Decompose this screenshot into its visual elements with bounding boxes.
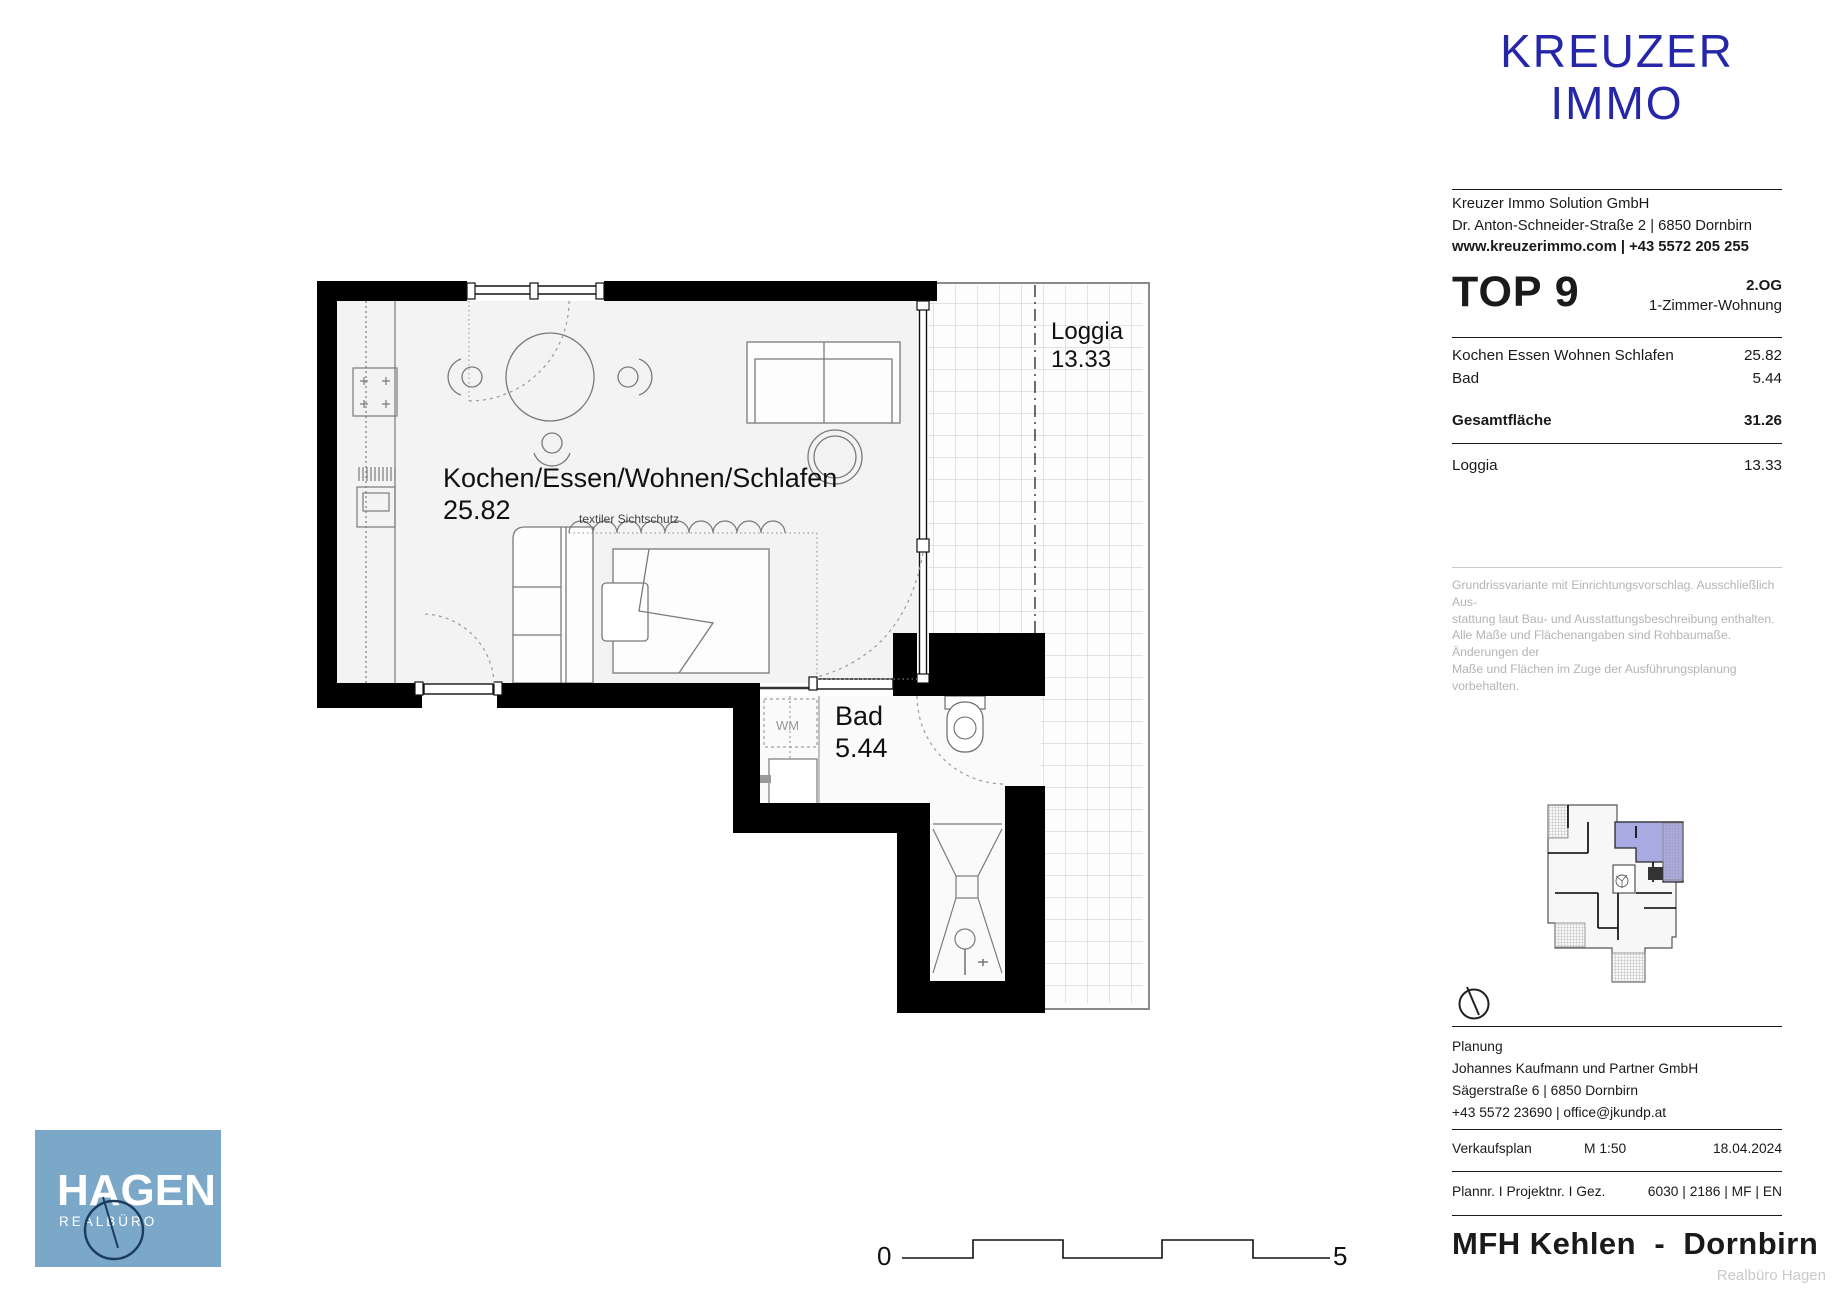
loggia-row-label: Loggia (1452, 457, 1498, 474)
brand-logo-line1: KREUZER (1452, 26, 1782, 78)
loggia-row-value: 13.33 (1744, 457, 1782, 474)
planning-block: Planung Johannes Kaufmann und Partner Gm… (1452, 1036, 1782, 1124)
bad-label: Bad (835, 701, 883, 731)
shower-floor (930, 803, 1005, 983)
total-value: 31.26 (1744, 412, 1782, 429)
loggia-label: Loggia (1051, 318, 1124, 345)
north-compass-icon (1455, 984, 1495, 1022)
loggia-row: Loggia 13.33 (1452, 457, 1782, 474)
area-row-value: 5.44 (1752, 370, 1782, 387)
planning-heading: Planung (1452, 1036, 1782, 1058)
disclaimer: Grundrissvariante mit Einrichtungsvorsch… (1452, 577, 1782, 695)
company-address: Dr. Anton-Schneider-Straße 2 | 6850 Dorn… (1452, 216, 1782, 238)
unit-type: 1-Zimmer-Wohnung (1452, 296, 1782, 316)
key-plan (1528, 798, 1698, 994)
plan-numbers-value: 6030 | 2186 | MF | EN (1648, 1184, 1782, 1199)
divider (1452, 337, 1782, 338)
room-area: 25.82 (443, 495, 511, 525)
floor-plan-svg: textiler Sichtschutz WM (317, 281, 1162, 1016)
hagen-logo: HAGEN REALBÜRO (35, 1130, 221, 1267)
company-name: Kreuzer Immo Solution GmbH (1452, 194, 1782, 216)
wm-label: WM (776, 718, 799, 733)
brand-logo: KREUZER IMMO (1452, 26, 1782, 129)
area-row-value: 25.82 (1744, 347, 1782, 364)
divider (1452, 1026, 1782, 1027)
scale-bar: 0 5 (865, 1225, 1350, 1270)
hagen-compass-mark (35, 1130, 221, 1267)
bed (602, 549, 769, 673)
divider (1452, 1129, 1782, 1130)
loggia-area: 13.33 (1051, 346, 1111, 373)
doc-date: 18.04.2024 (1667, 1141, 1783, 1156)
unit-floor-block: 2.OG 1-Zimmer-Wohnung (1452, 276, 1782, 316)
planning-contact: +43 5572 23690 | office@jkundp.at (1452, 1102, 1782, 1124)
divider (1452, 567, 1782, 568)
scale-start: 0 (877, 1241, 891, 1270)
sink (769, 759, 817, 805)
wc (947, 702, 983, 752)
plan-numbers-row: Plannr. I Projektnr. I Gez. 6030 | 2186 … (1452, 1184, 1782, 1199)
divider (1452, 1171, 1782, 1172)
planning-address: Sägerstraße 6 | 6850 Dornbirn (1452, 1080, 1782, 1102)
divider (1452, 443, 1782, 444)
scale-end: 5 (1333, 1241, 1347, 1270)
area-row-label: Kochen Essen Wohnen Schlafen (1452, 347, 1674, 364)
lift-shaft (1648, 867, 1663, 880)
room-label: Kochen/Essen/Wohnen/Schlafen (443, 463, 837, 493)
area-row: Kochen Essen Wohnen Schlafen 25.82 (1452, 347, 1782, 364)
unit-floor: 2.OG (1452, 276, 1782, 296)
wardrobe (513, 527, 593, 683)
total-area-row: Gesamtfläche 31.26 (1452, 412, 1782, 429)
watermark: Realbüro Hagen (1717, 1267, 1826, 1284)
planning-company: Johannes Kaufmann und Partner GmbH (1452, 1058, 1782, 1080)
company-contact: www.kreuzerimmo.com | +43 5572 205 255 (1452, 237, 1782, 259)
loggia-hatch (1555, 923, 1585, 947)
sofa (747, 342, 900, 423)
project-title: MFH Kehlen - Dornbirn (1452, 1226, 1782, 1262)
brand-logo-line2: IMMO (1452, 78, 1782, 130)
doc-scale: M 1:50 (1584, 1141, 1667, 1156)
bad-area: 5.44 (835, 733, 888, 763)
floor-plan-sheet: textiler Sichtschutz WM (0, 0, 1838, 1298)
company-block: Kreuzer Immo Solution GmbH Dr. Anton-Sch… (1452, 194, 1782, 259)
divider (1452, 1215, 1782, 1216)
doc-type: Verkaufsplan (1452, 1141, 1584, 1156)
pillow (602, 583, 648, 641)
loggia-hatch (1548, 805, 1568, 838)
total-label: Gesamtfläche (1452, 412, 1552, 429)
plan-numbers-label: Plannr. I Projektnr. I Gez. (1452, 1184, 1605, 1199)
divider (1452, 189, 1782, 190)
area-row-label: Bad (1452, 370, 1479, 387)
curtain-label: textiler Sichtschutz (579, 512, 679, 526)
area-row: Bad 5.44 (1452, 370, 1782, 387)
plan-meta-row: Verkaufsplan M 1:50 18.04.2024 (1452, 1141, 1782, 1156)
loggia-hatch (1663, 823, 1683, 880)
loggia-hatch (1612, 953, 1645, 982)
